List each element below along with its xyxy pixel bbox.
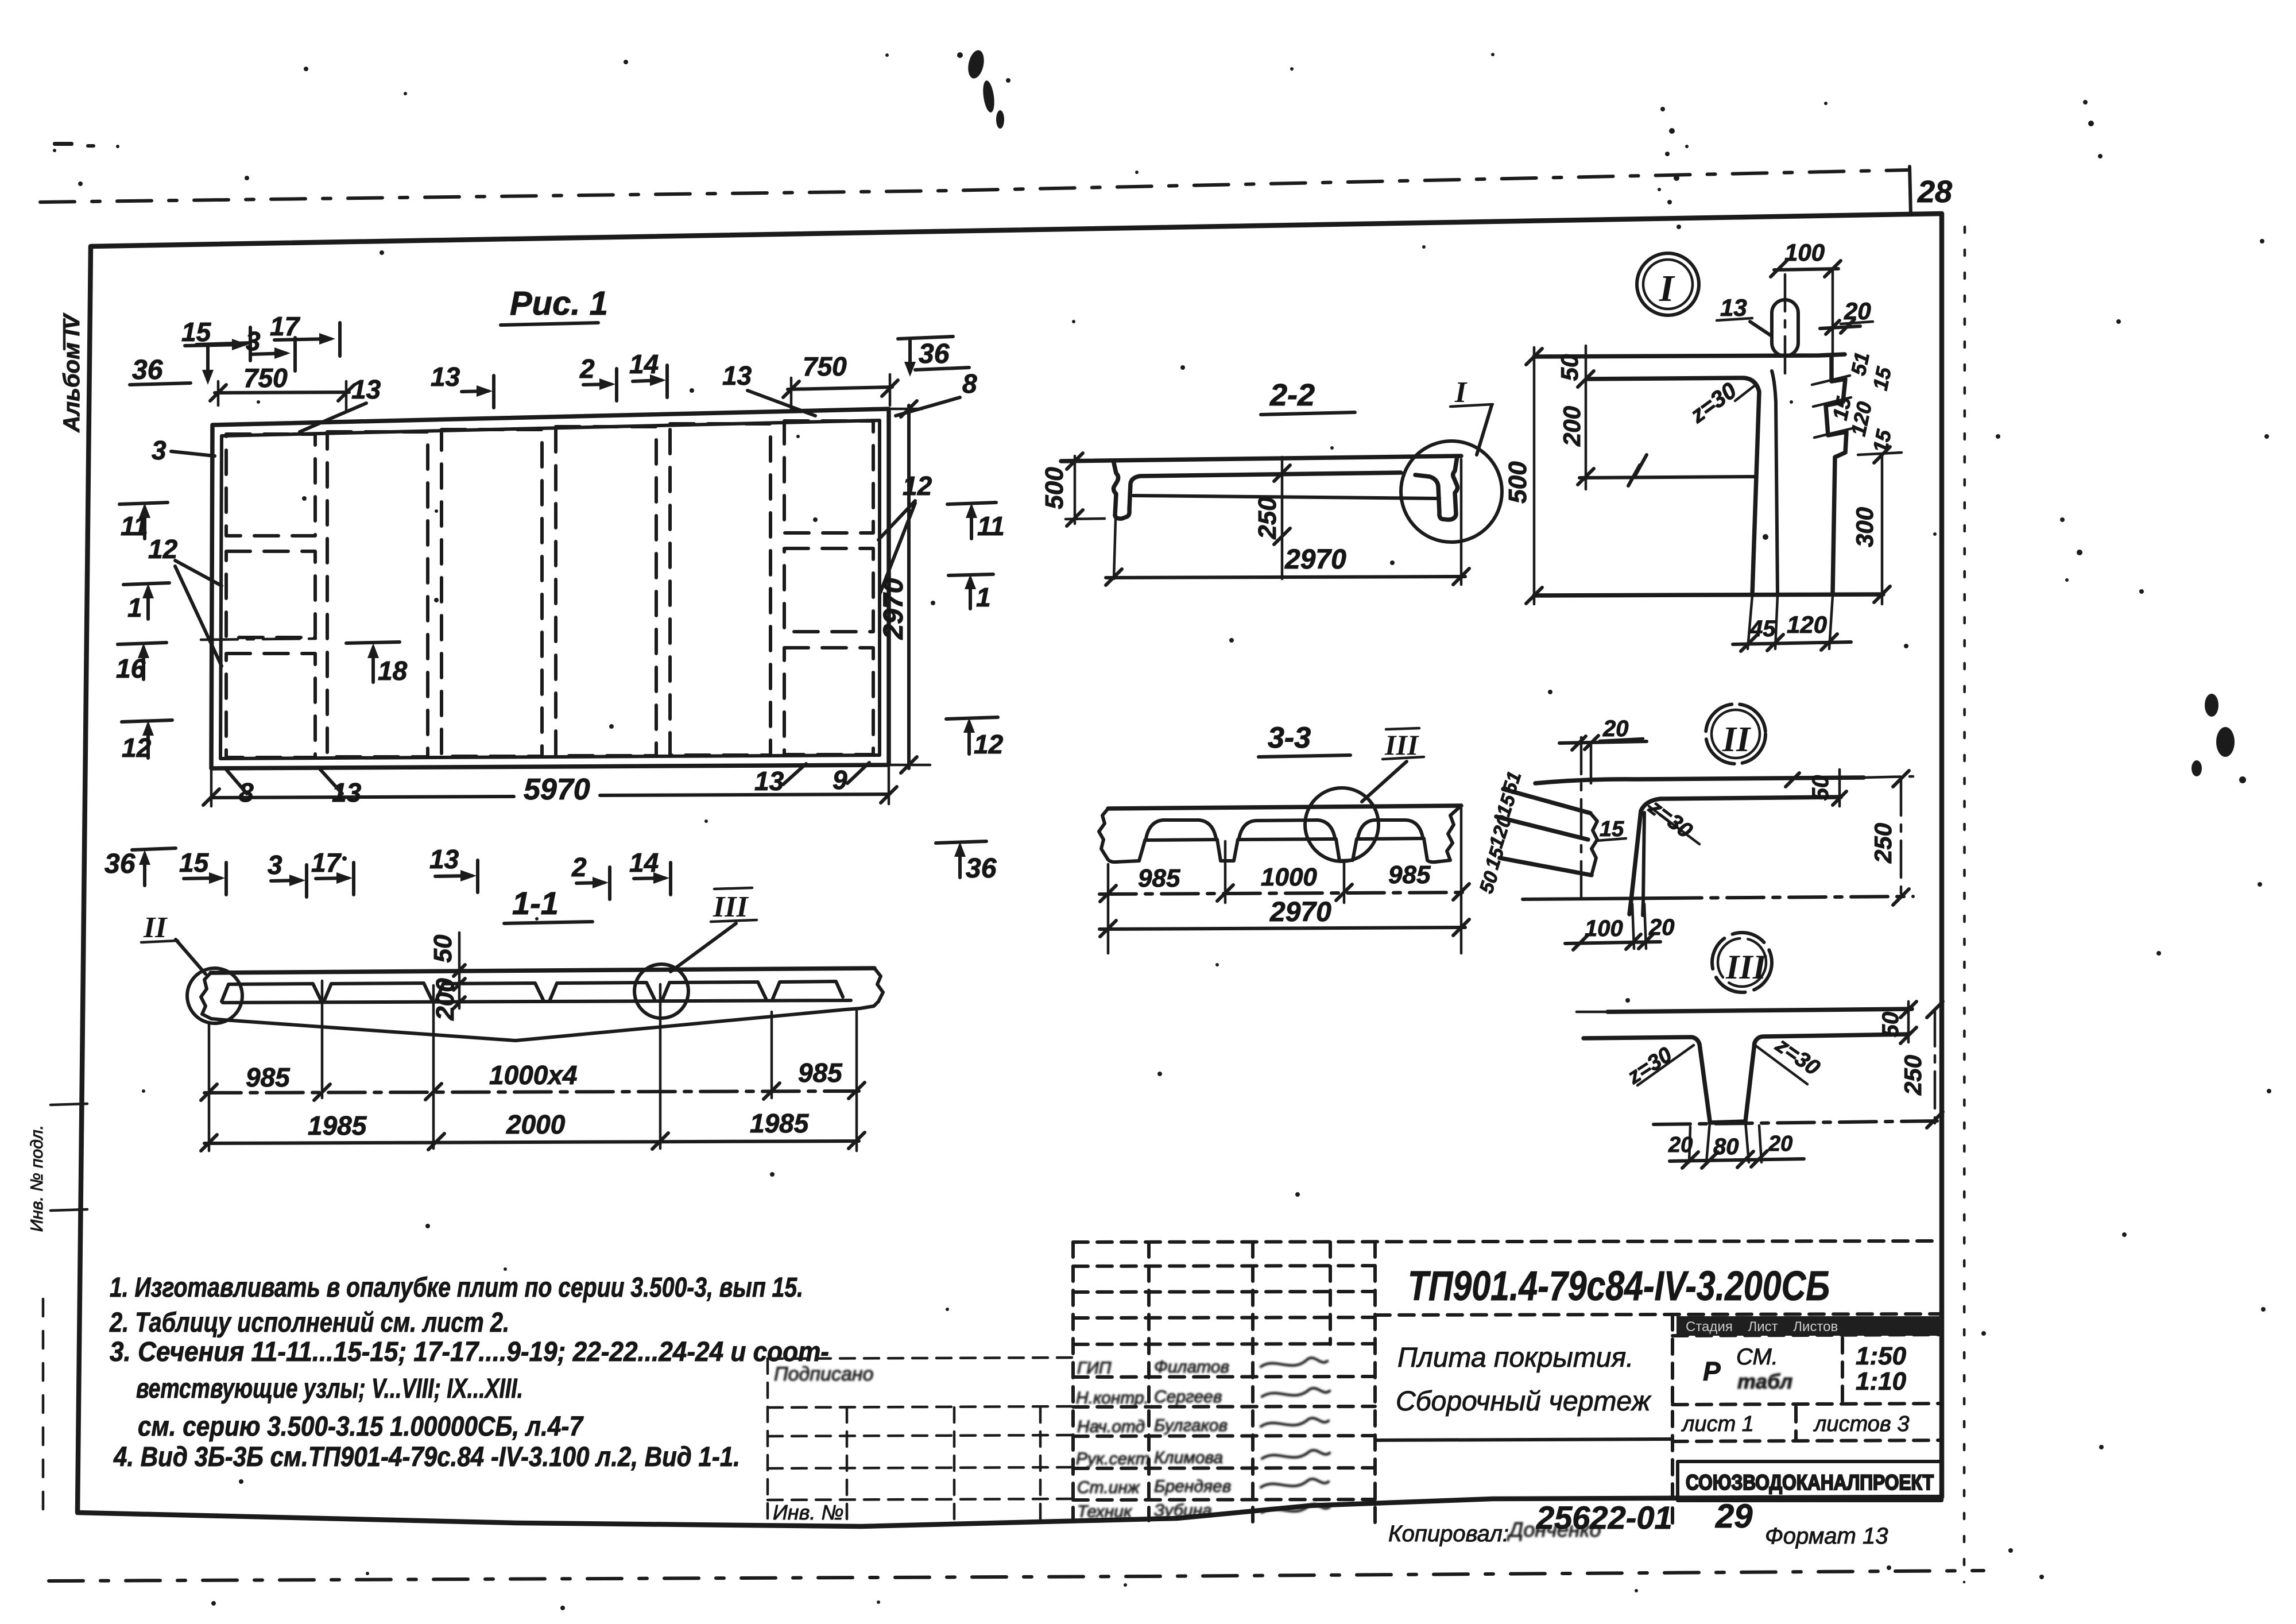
svg-text:3: 3 [246,326,261,356]
svg-text:1985: 1985 [750,1108,810,1138]
svg-text:II: II [143,911,168,944]
svg-text:2: 2 [571,852,587,882]
svg-text:16: 16 [116,654,146,683]
svg-text:Инв. № подл.: Инв. № подл. [28,1125,47,1232]
svg-text:Брендяев: Брендяев [1154,1477,1231,1496]
svg-text:Рук.сект: Рук.сект [1076,1449,1150,1468]
svg-text:13: 13 [754,766,784,796]
svg-text:Техник: Техник [1077,1502,1133,1521]
svg-text:3: 3 [268,850,282,880]
svg-text:36: 36 [132,355,163,385]
svg-text:1: 1 [976,582,991,612]
svg-text:2-2: 2-2 [1269,378,1315,412]
svg-text:2970: 2970 [1269,897,1331,927]
svg-text:50: 50 [1878,1012,1903,1038]
svg-text:I: I [1659,268,1675,310]
svg-text:36: 36 [919,339,950,369]
svg-text:ветствующие узлы; V...VIII; IX: ветствующие узлы; V...VIII; IX...XIII. [136,1374,523,1404]
svg-text:28: 28 [1917,175,1952,209]
svg-text:29: 29 [1715,1498,1753,1535]
svg-text:Сергеев: Сергеев [1154,1387,1222,1406]
svg-text:50: 50 [1808,775,1833,801]
svg-text:985: 985 [798,1058,843,1088]
svg-text:100: 100 [1585,916,1623,941]
svg-text:III: III [1384,729,1419,761]
svg-text:ГИП: ГИП [1077,1359,1112,1378]
svg-text:II: II [1722,720,1751,759]
svg-text:2970: 2970 [878,578,909,640]
svg-text:9: 9 [833,765,847,795]
svg-text:13: 13 [351,374,381,404]
svg-text:36: 36 [104,849,135,879]
svg-text:табл: табл [1737,1370,1792,1393]
svg-text:3. Сечения 11-11...15-15; 17-1: 3. Сечения 11-11...15-15; 17-17....9-19;… [110,1337,829,1367]
svg-text:80: 80 [1713,1134,1739,1159]
svg-text:13: 13 [1720,294,1747,321]
svg-text:III: III [713,891,749,923]
svg-text:11: 11 [977,511,1005,541]
svg-text:Стадия Лист Листов: Стадия Лист Листов [1686,1319,1838,1335]
svg-text:15: 15 [179,848,210,877]
svg-text:ТП901.4-79с84-IV-3.200СБ: ТП901.4-79с84-IV-3.200СБ [1408,1263,1830,1309]
svg-text:14: 14 [629,349,659,379]
svg-text:2. Таблицу исполнений см. лист: 2. Таблицу исполнений см. лист 2. [109,1308,509,1338]
svg-text:1-1: 1-1 [512,885,559,921]
svg-text:Копировал:: Копировал: [1388,1521,1509,1546]
svg-text:4. Вид 3Б-3Б см.ТП901-4-79с.84: 4. Вид 3Б-3Б см.ТП901-4-79с.84 -IV-3.100… [113,1442,740,1472]
svg-text:Рис. 1: Рис. 1 [510,285,608,322]
svg-text:300: 300 [1851,507,1878,547]
svg-text:12: 12 [148,534,178,564]
svg-text:Ст.инж: Ст.инж [1077,1478,1140,1497]
svg-text:12: 12 [974,729,1004,759]
svg-text:1:50: 1:50 [1856,1342,1907,1370]
svg-text:8: 8 [962,369,977,399]
svg-text:2: 2 [579,354,595,384]
svg-text:985: 985 [246,1062,291,1092]
svg-text:лист 1: лист 1 [1681,1412,1754,1436]
svg-text:20: 20 [1768,1132,1792,1156]
svg-text:Филатов: Филатов [1154,1358,1229,1376]
svg-text:20: 20 [1668,1133,1693,1157]
svg-text:Климова: Климова [1154,1448,1223,1467]
svg-text:11: 11 [121,511,148,541]
svg-text:1:10: 1:10 [1856,1367,1907,1395]
svg-text:250: 250 [1899,1055,1926,1096]
svg-text:200: 200 [431,978,459,1021]
svg-text:2970: 2970 [1284,544,1346,575]
svg-text:Р: Р [1703,1356,1721,1386]
svg-text:Альбом IV: Альбом IV [59,312,84,433]
svg-text:Зубина: Зубина [1154,1501,1212,1520]
svg-text:см. серию 3.500-3.15 1.00000С: см. серию 3.500-3.15 1.00000СБ, л.4-7 [138,1412,584,1442]
svg-text:13: 13 [429,844,459,874]
svg-text:1000: 1000 [1261,863,1317,891]
svg-text:1. Изготавливать в опалубке пл: 1. Изготавливать в опалубке плит по сери… [110,1273,803,1303]
svg-text:2000: 2000 [506,1109,566,1139]
svg-text:СОЮЗВОДОКАНАЛПРОЕКТ: СОЮЗВОДОКАНАЛПРОЕКТ [1686,1471,1934,1494]
svg-text:Булгаков: Булгаков [1154,1416,1228,1435]
svg-text:250: 250 [1253,497,1281,540]
svg-text:18: 18 [378,656,408,686]
svg-text:Сборочный чертеж: Сборочный чертеж [1396,1386,1652,1417]
svg-text:12: 12 [903,471,932,501]
svg-text:200: 200 [1558,406,1585,447]
svg-text:13: 13 [722,361,752,390]
svg-text:12: 12 [122,733,152,763]
svg-text:985: 985 [1388,861,1431,889]
svg-text:120: 120 [1787,611,1827,638]
svg-text:3-3: 3-3 [1268,721,1311,755]
svg-text:Нач.отд: Нач.отд [1077,1417,1145,1436]
svg-text:Плита покрытия.: Плита покрытия. [1397,1343,1633,1373]
svg-text:Формат 13: Формат 13 [1765,1524,1888,1549]
svg-text:100: 100 [1784,239,1825,266]
svg-text:листов 3: листов 3 [1813,1412,1909,1436]
svg-text:45: 45 [1749,616,1776,641]
svg-text:20: 20 [1844,297,1871,324]
svg-text:Н.контр.: Н.контр. [1076,1389,1149,1408]
svg-text:1985: 1985 [308,1111,367,1140]
svg-text:20: 20 [1602,716,1629,741]
svg-text:51: 51 [1846,350,1874,378]
svg-text:500: 500 [1504,461,1532,504]
svg-text:13: 13 [431,362,460,392]
svg-text:985: 985 [1138,864,1180,892]
svg-text:750: 750 [803,351,847,381]
svg-text:1: 1 [127,593,142,622]
svg-text:15: 15 [181,317,212,347]
svg-text:17: 17 [270,311,301,341]
svg-text:III: III [1725,948,1768,986]
svg-text:13: 13 [332,778,362,807]
svg-text:I: I [1454,376,1468,409]
svg-text:25622-01: 25622-01 [1536,1499,1672,1536]
svg-text:СМ.: СМ. [1736,1344,1778,1370]
svg-text:250: 250 [1869,823,1896,864]
svg-text:5970: 5970 [524,773,590,806]
svg-text:50: 50 [429,934,457,962]
svg-text:36: 36 [966,853,997,884]
svg-text:Подписано: Подписано [774,1363,874,1385]
svg-text:50: 50 [1556,354,1583,381]
svg-text:1000х4: 1000х4 [489,1060,578,1090]
svg-text:750: 750 [243,363,288,393]
svg-text:500: 500 [1040,467,1068,509]
svg-text:Инв. №: Инв. № [773,1501,843,1524]
svg-text:3: 3 [152,435,167,465]
svg-text:20: 20 [1648,915,1675,940]
